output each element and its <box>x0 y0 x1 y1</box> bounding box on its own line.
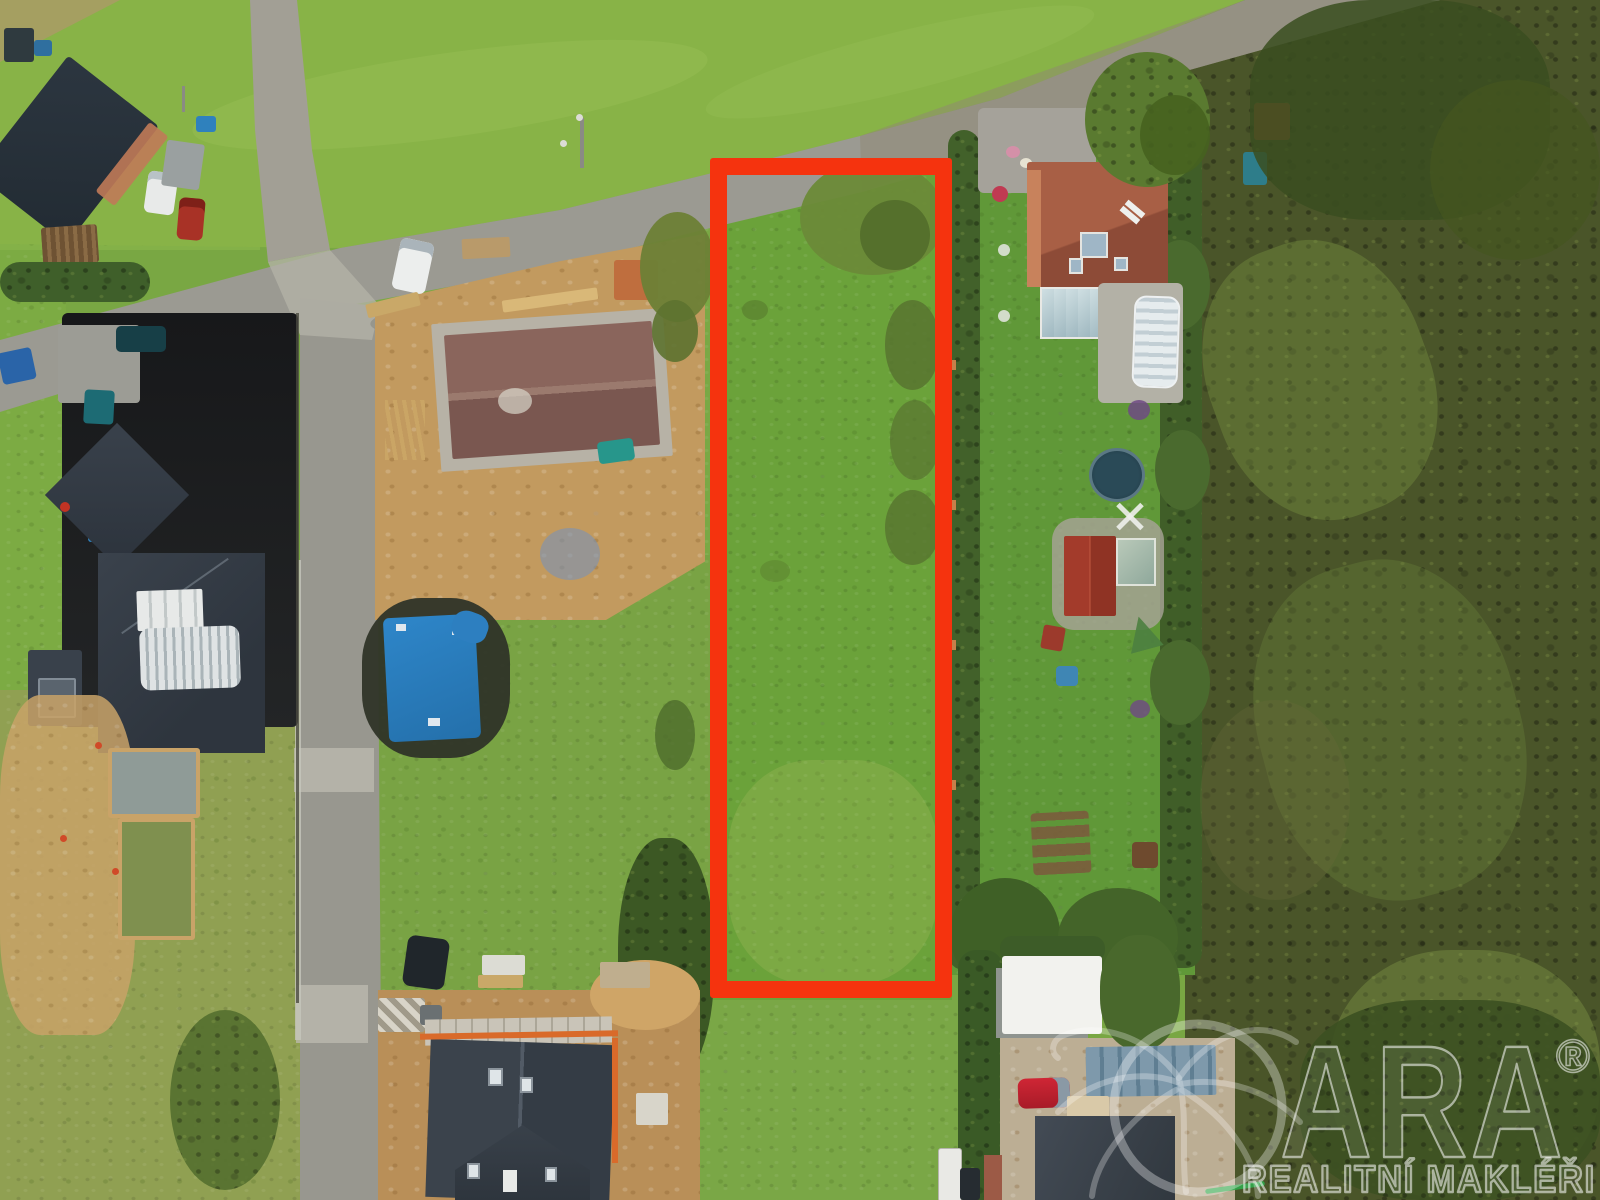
dark-suv <box>402 934 451 990</box>
red-paving-strip <box>984 1155 1002 1200</box>
pallet-stack-right <box>600 962 650 988</box>
bush-left-of-plot-mid <box>652 300 698 362</box>
trees-right-of-building <box>1100 935 1180 1050</box>
materials-clutter <box>378 998 425 1032</box>
hedge-left-of-right-garden <box>948 130 980 970</box>
roof-window-small-1 <box>1069 258 1083 274</box>
utility-pole-small <box>182 86 185 112</box>
roof-skylight-1 <box>488 1068 503 1086</box>
red-parked-car <box>1017 1077 1070 1109</box>
roof-hatch-white <box>503 1170 517 1192</box>
tarp-label-3 <box>428 718 440 726</box>
field-brown-patch <box>1200 700 1350 900</box>
survey-stake-1 <box>95 742 102 749</box>
brown-compost-box <box>1132 842 1158 868</box>
roof-skylight-3 <box>467 1163 480 1179</box>
pallet-white-right <box>636 1093 668 1125</box>
dark-teal-parked-car <box>116 326 166 352</box>
tarp-label-1 <box>396 624 406 631</box>
field-tree-top-2 <box>1430 80 1600 260</box>
covered-pool <box>1131 295 1180 389</box>
driveway-apron-2 <box>296 985 368 1043</box>
right-house-wall <box>1027 170 1041 287</box>
bush-left-of-plot-small <box>655 700 695 770</box>
vegetable-beds <box>1030 811 1091 876</box>
scaffold-right <box>612 1038 618 1163</box>
survey-stake-3 <box>112 868 119 875</box>
teal-car <box>83 389 115 425</box>
greenhouse <box>1116 538 1156 586</box>
yard-clutter-dark <box>4 28 34 62</box>
hedge-tree-2 <box>1155 430 1210 510</box>
white-shrub-ball-2 <box>998 310 1010 322</box>
work-table <box>462 237 511 259</box>
property-boundary-highlight <box>710 158 952 998</box>
garden-shed-red-roof <box>1064 536 1116 616</box>
mortar-patch <box>498 388 532 414</box>
flower-bed-red <box>992 186 1008 202</box>
utility-pole <box>580 118 584 168</box>
round-pool <box>1089 448 1145 502</box>
flower-bed-pink <box>1006 146 1020 158</box>
purple-shrub-lower <box>1130 700 1150 718</box>
blue-gravel-pile <box>540 528 600 580</box>
wood-scrap-pile <box>385 400 425 460</box>
sand-patch <box>0 695 135 1035</box>
pergola <box>41 224 100 266</box>
blue-garden-item <box>1056 666 1078 686</box>
big-tree-dark-core <box>1140 95 1210 175</box>
garden-shed-trailer <box>161 140 205 191</box>
small-blue-tarp <box>196 116 216 132</box>
aerial-photo: ARA ® REALITNÍ MAKLÉŘI <box>0 0 1600 1200</box>
red-garden-toy <box>60 502 70 512</box>
hedge-tree-3 <box>1150 640 1210 725</box>
roof-window-large <box>1080 232 1108 258</box>
white-trailer <box>938 1148 962 1200</box>
dark-van <box>960 1168 980 1200</box>
roof-skylight-4 <box>545 1167 557 1182</box>
driveway-apron-1 <box>294 748 374 792</box>
roof-skylight-2 <box>520 1077 533 1093</box>
pallet-white <box>482 955 525 975</box>
garage-skylight-panel <box>136 589 203 631</box>
yard-boundary-fence <box>296 313 299 1003</box>
pallet-lumber <box>478 975 523 988</box>
carport-blue-roof <box>1086 1045 1217 1097</box>
bottom-right-house-roof <box>1035 1116 1175 1200</box>
pool-enclosure-left-house <box>139 625 241 690</box>
bottom-left-bush-cluster <box>170 1010 280 1190</box>
pole-insulator-2 <box>560 140 567 147</box>
foundation-trench-bottom <box>118 818 195 940</box>
roof-window-small-2 <box>1114 257 1128 271</box>
yard-clutter-blue <box>34 40 52 56</box>
pole-insulator-1 <box>576 114 583 121</box>
white-flat-building <box>1002 956 1102 1034</box>
foundation-trench-top <box>108 748 200 818</box>
white-shrub-ball-1 <box>998 244 1010 256</box>
garden-hedge-row <box>0 262 150 302</box>
survey-stake-2 <box>60 835 67 842</box>
purple-flower-bush <box>1128 400 1150 420</box>
dog-house <box>1040 624 1066 651</box>
red-car <box>176 197 206 241</box>
field-tree-cluster-bottom <box>1300 1000 1600 1200</box>
